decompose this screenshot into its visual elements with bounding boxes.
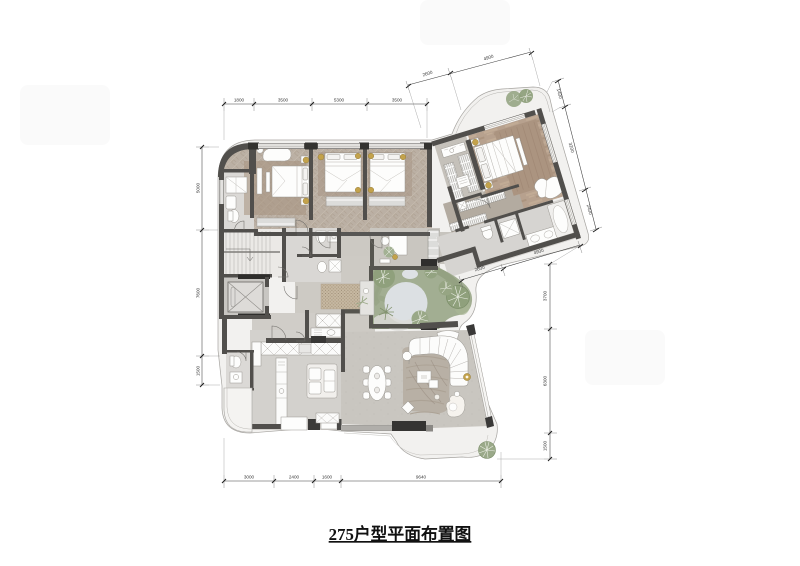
- svg-text:7600: 7600: [196, 287, 201, 298]
- svg-text:6300: 6300: [543, 375, 548, 386]
- svg-text:3500: 3500: [278, 98, 289, 103]
- svg-text:275户型平面布置图: 275户型平面布置图: [329, 524, 472, 544]
- svg-text:2400: 2400: [289, 475, 300, 480]
- svg-text:3000: 3000: [244, 475, 255, 480]
- svg-text:1500: 1500: [543, 440, 548, 451]
- svg-text:3500: 3500: [392, 98, 403, 103]
- svg-text:5300: 5300: [334, 98, 345, 103]
- svg-text:1600: 1600: [322, 475, 333, 480]
- svg-text:5000: 5000: [196, 182, 201, 193]
- svg-text:9640: 9640: [416, 475, 427, 480]
- svg-text:3700: 3700: [543, 290, 548, 301]
- svg-text:1800: 1800: [234, 98, 245, 103]
- svg-text:1500: 1500: [196, 365, 201, 376]
